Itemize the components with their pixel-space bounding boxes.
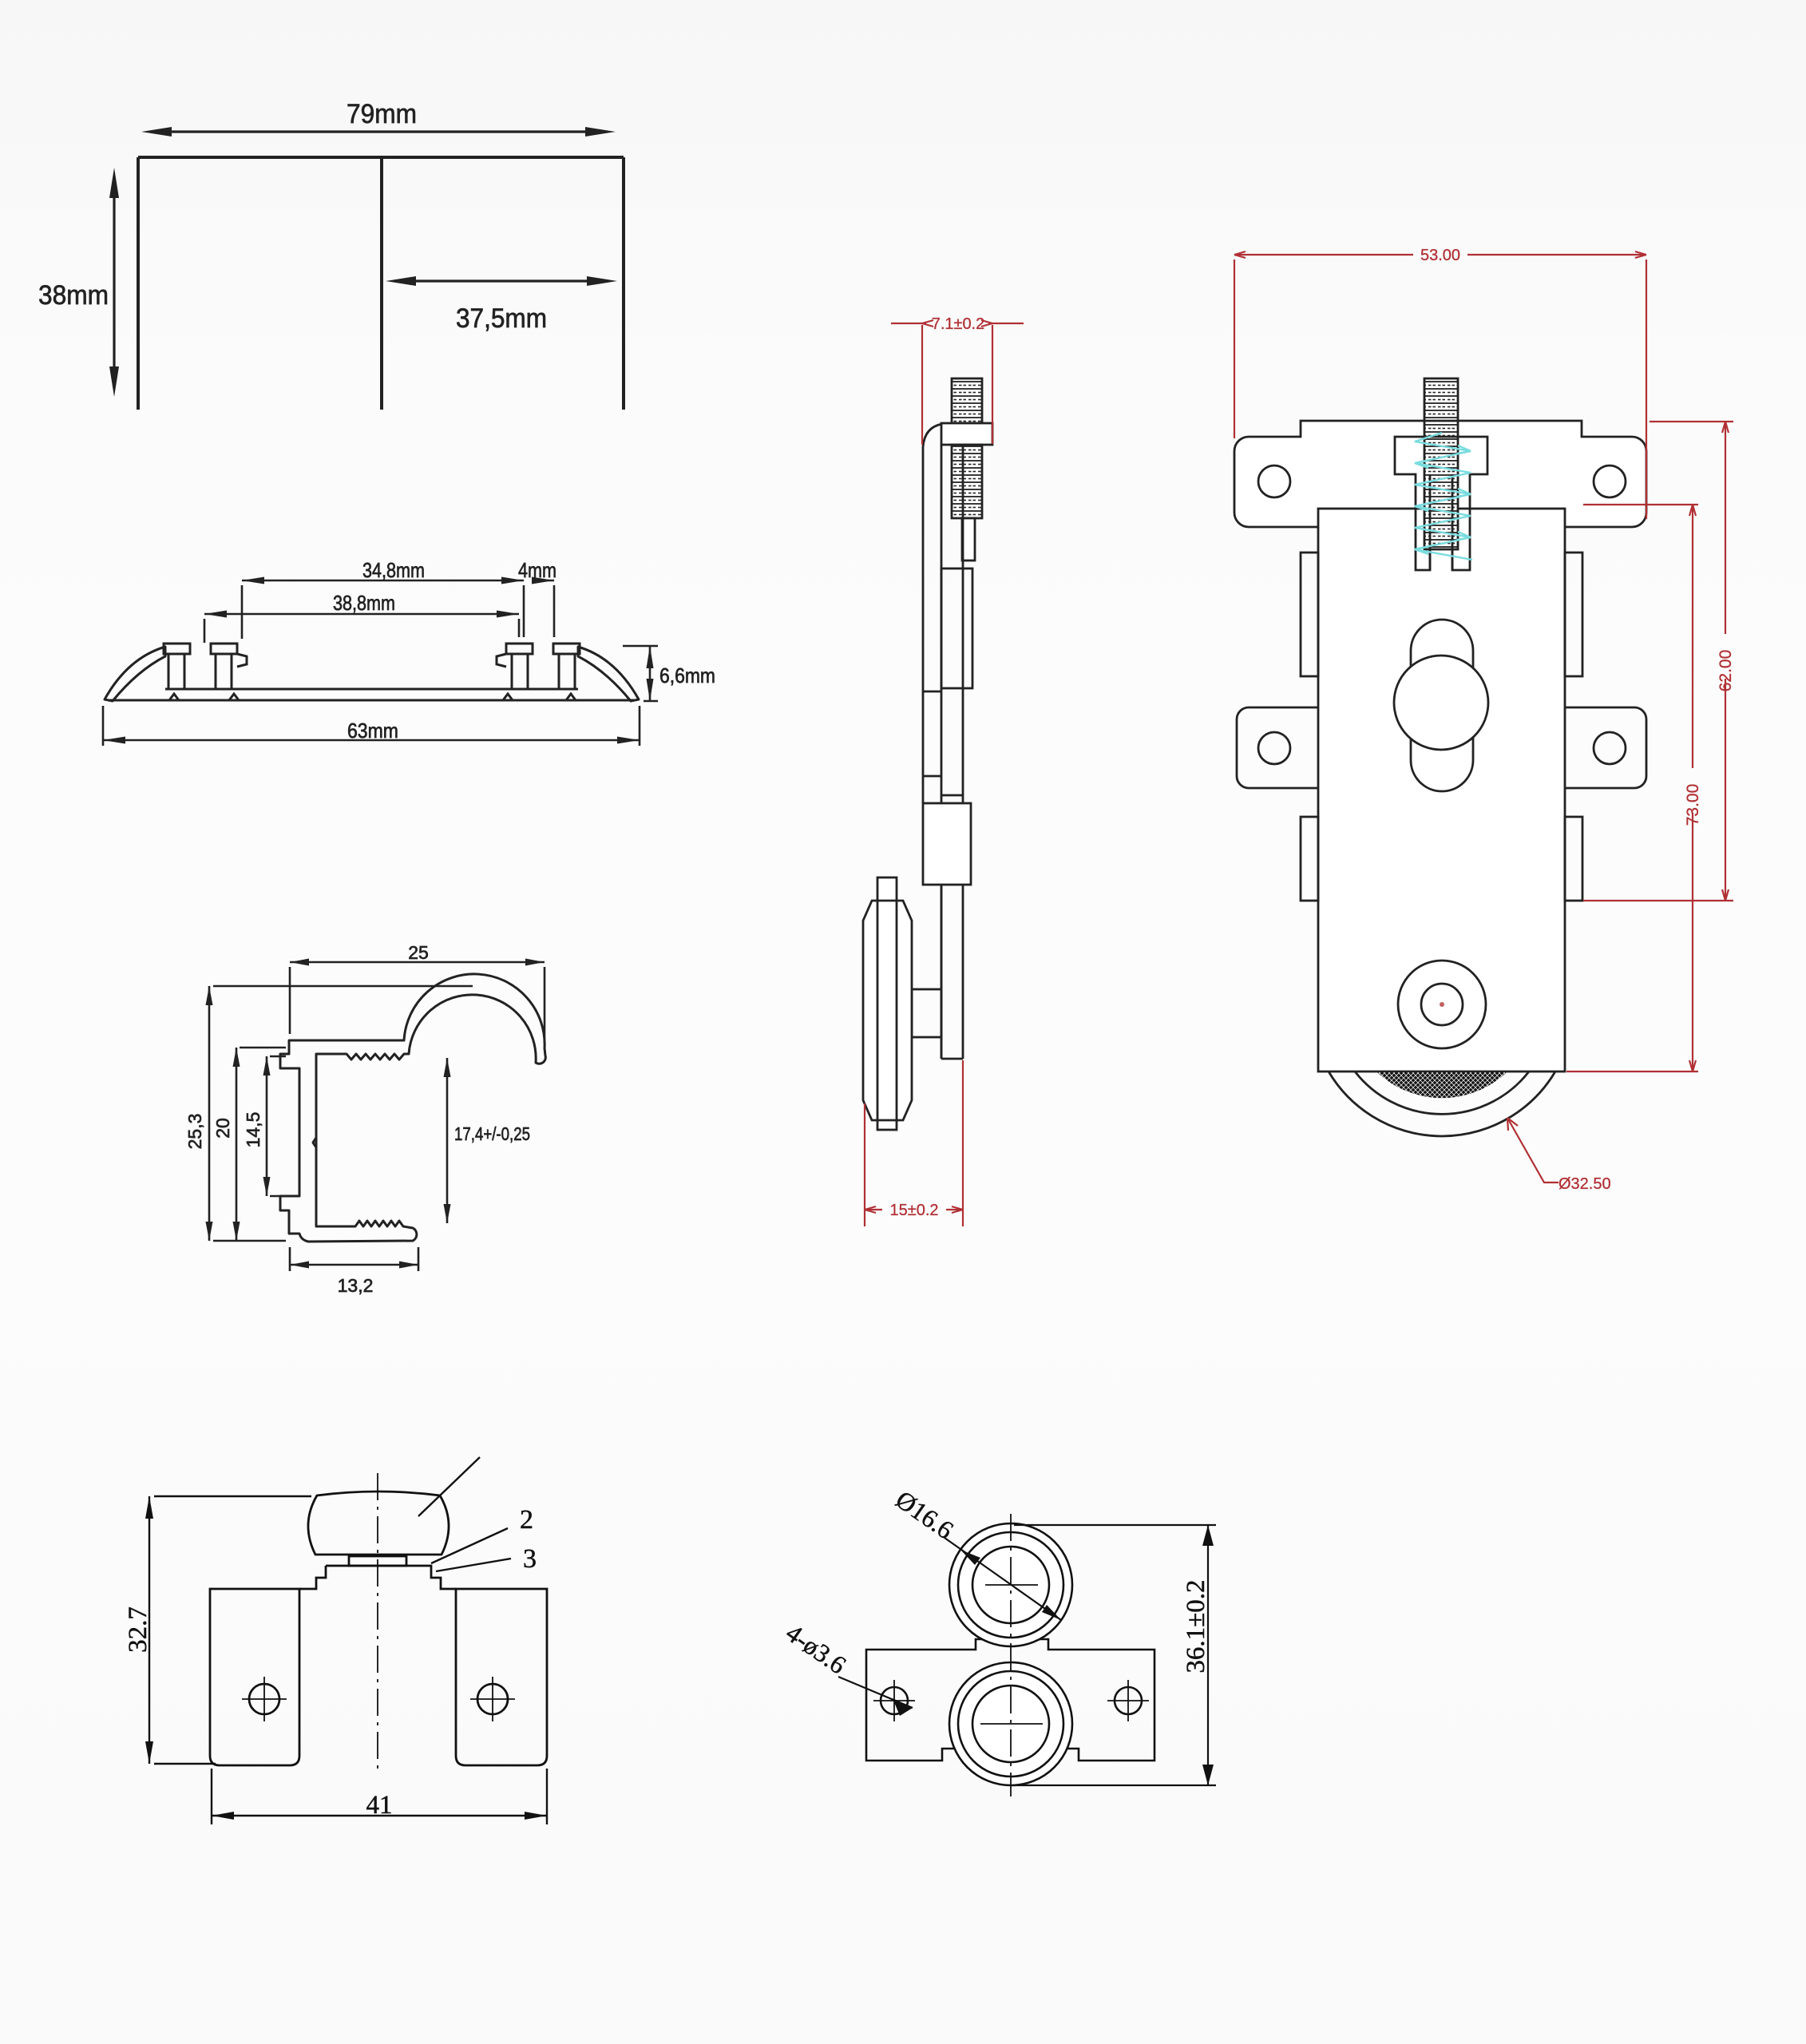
svg-text:3: 3 [523,1544,537,1574]
svg-text:4mm: 4mm [518,558,556,582]
svg-text:53.00: 53.00 [1420,247,1460,264]
svg-text:41: 41 [366,1791,393,1820]
svg-text:79mm: 79mm [347,99,417,129]
svg-text:62.00: 62.00 [1717,650,1735,692]
svg-text:6,6mm: 6,6mm [659,664,715,687]
svg-text:36.1±0.2: 36.1±0.2 [1182,1579,1210,1673]
svg-text:7.1±0.2: 7.1±0.2 [932,315,985,333]
svg-text:Ø32.50: Ø32.50 [1558,1175,1611,1193]
svg-text:13,2: 13,2 [338,1275,374,1296]
svg-text:25: 25 [408,942,429,963]
svg-text:17,4+/-0,25: 17,4+/-0,25 [454,1123,530,1144]
svg-text:15±0.2: 15±0.2 [889,1202,938,1219]
svg-text:73.00: 73.00 [1684,784,1702,826]
svg-text:14,5: 14,5 [243,1112,263,1148]
svg-text:63mm: 63mm [347,719,398,743]
svg-text:25,3: 25,3 [184,1114,205,1150]
svg-text:32.7: 32.7 [124,1606,152,1653]
svg-text:34,8mm: 34,8mm [362,558,425,582]
svg-text:38,8mm: 38,8mm [333,591,395,615]
svg-text:37,5mm: 37,5mm [456,303,547,334]
svg-text:2: 2 [520,1505,533,1535]
svg-text:38mm: 38mm [38,280,109,311]
svg-text:20: 20 [212,1118,233,1139]
